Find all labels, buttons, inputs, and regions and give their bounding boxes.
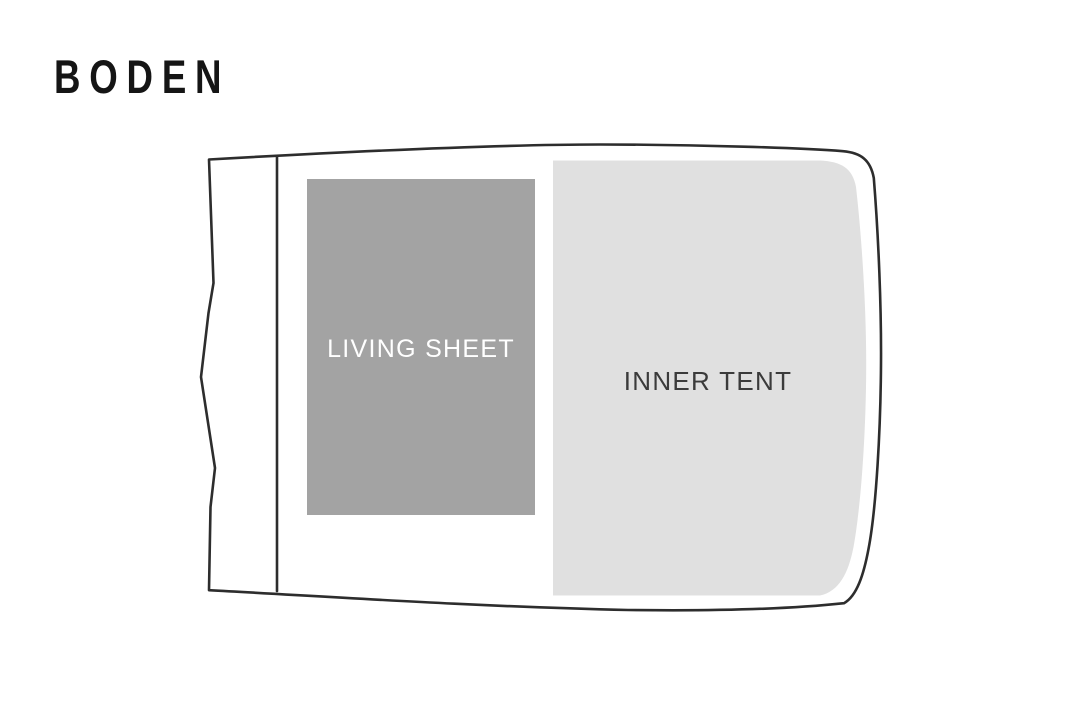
page-title: BODEN [54,51,230,103]
living-sheet-label: LIVING SHEET [327,335,515,363]
page-background [0,0,1080,721]
tent-floorplan-diagram: BODEN LIVING SHEET INNER TENT [0,0,1080,721]
inner-tent-label: INNER TENT [624,366,793,396]
page: BODEN LIVING SHEET INNER TENT [0,0,1080,721]
